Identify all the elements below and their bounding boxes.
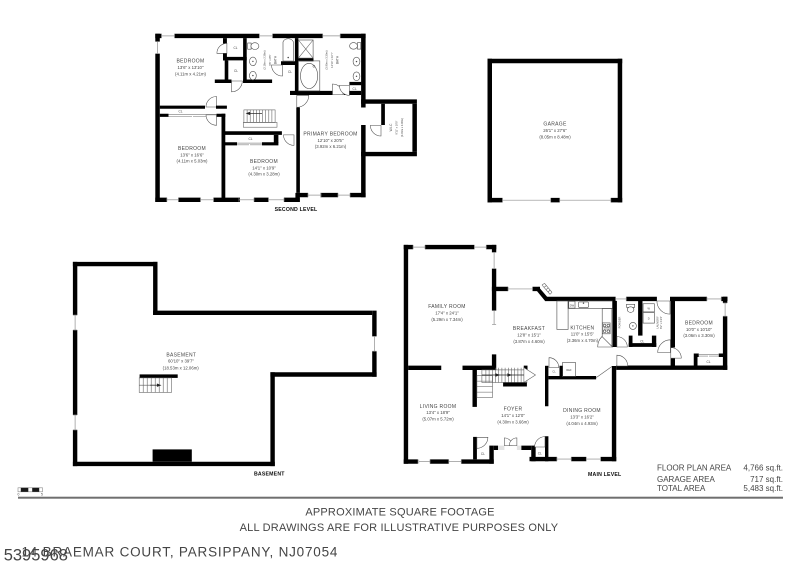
svg-text:CL: CL <box>481 452 485 456</box>
svg-text:W.I.C: W.I.C <box>389 123 393 131</box>
svg-text:4,766 sq.ft.: 4,766 sq.ft. <box>743 463 783 472</box>
svg-text:FOYER: FOYER <box>504 407 523 413</box>
svg-text:CL: CL <box>552 370 556 374</box>
svg-text:BASEMENT: BASEMENT <box>254 471 285 477</box>
svg-text:BEDROOM: BEDROOM <box>685 321 713 327</box>
svg-text:(2.16m x 2.36m): (2.16m x 2.36m) <box>262 50 266 69</box>
svg-text:12'10" x 10'7": 12'10" x 10'7" <box>330 52 334 68</box>
svg-text:REF: REF <box>566 368 572 372</box>
svg-text:(5.29m x 7.34m): (5.29m x 7.34m) <box>431 317 463 322</box>
svg-text:17'4" x 24'1": 17'4" x 24'1" <box>435 311 459 316</box>
svg-text:CL: CL <box>288 70 292 74</box>
svg-text:APPROXIMATE SQUARE FOOTAGE: APPROXIMATE SQUARE FOOTAGE <box>305 506 494 518</box>
svg-text:(4.04m x 4.93m): (4.04m x 4.93m) <box>566 421 598 426</box>
svg-text:11'0" x 15'5": 11'0" x 15'5" <box>571 332 595 337</box>
svg-text:(8.05m x 8.48m): (8.05m x 8.48m) <box>539 134 571 139</box>
svg-text:12'8" x 15'1": 12'8" x 15'1" <box>517 332 541 337</box>
svg-text:CL: CL <box>233 46 237 50</box>
svg-text:14'1" x 10'9": 14'1" x 10'9" <box>252 165 276 170</box>
svg-text:(3.36m x 4.70m): (3.36m x 4.70m) <box>567 338 599 343</box>
svg-text:FAMILY ROOM: FAMILY ROOM <box>428 304 466 310</box>
svg-text:CL: CL <box>234 69 238 73</box>
svg-text:26'1" x 27'6": 26'1" x 27'6" <box>543 128 567 133</box>
svg-text:CL: CL <box>538 451 542 455</box>
svg-text:0: 0 <box>18 492 20 496</box>
svg-text:13'3" x 16'2": 13'3" x 16'2" <box>570 415 594 420</box>
svg-text:13'6" x 13'10": 13'6" x 13'10" <box>178 65 204 70</box>
svg-text:CL: CL <box>706 360 710 364</box>
svg-text:TOTAL AREA: TOTAL AREA <box>657 484 706 493</box>
svg-text:717 sq.ft.: 717 sq.ft. <box>750 475 783 484</box>
svg-text:DW: DW <box>570 303 575 307</box>
svg-text:(3.90m x 3.30m): (3.90m x 3.30m) <box>324 50 328 69</box>
svg-text:PRIMARY BEDROOM: PRIMARY BEDROOM <box>303 132 357 138</box>
svg-text:CL: CL <box>640 339 644 343</box>
svg-text:(4.11m x 4.21m): (4.11m x 4.21m) <box>175 71 207 76</box>
svg-text:BATH: BATH <box>335 55 339 64</box>
svg-text:(18.53m x 12.06m): (18.53m x 12.06m) <box>163 366 200 371</box>
svg-text:CL: CL <box>353 87 357 91</box>
svg-text:ALL DRAWINGS ARE FOR ILLUSTRAT: ALL DRAWINGS ARE FOR ILLUSTRATIVE PURPOS… <box>240 522 559 534</box>
svg-text:LIVING ROOM: LIVING ROOM <box>420 404 457 410</box>
svg-text:60'10" x 39'7": 60'10" x 39'7" <box>168 358 194 363</box>
svg-text:13'4" x 18'9": 13'4" x 18'9" <box>426 410 450 415</box>
svg-text:BATH: BATH <box>273 55 277 64</box>
svg-text:POWDER: POWDER <box>618 317 622 329</box>
svg-text:DINING ROOM: DINING ROOM <box>563 408 601 414</box>
svg-text:5,483 sq.ft.: 5,483 sq.ft. <box>743 484 783 493</box>
svg-text:10'0" x 10'10": 10'0" x 10'10" <box>686 327 712 332</box>
svg-text:(3.92m x 6.21m): (3.92m x 6.21m) <box>315 144 347 149</box>
svg-text:(3.87m x 4.60m): (3.87m x 4.60m) <box>513 339 545 344</box>
svg-text:14'1" x 12'0": 14'1" x 12'0" <box>501 413 525 418</box>
svg-text:GARAGE: GARAGE <box>543 122 567 128</box>
svg-text:SECOND LEVEL: SECOND LEVEL <box>275 207 318 213</box>
svg-text:5: 5 <box>41 492 43 496</box>
svg-text:FLOOR PLAN AREA: FLOOR PLAN AREA <box>657 463 732 472</box>
svg-text:BEDROOM: BEDROOM <box>250 159 278 165</box>
svg-text:(5.07m x 5.72m): (5.07m x 5.72m) <box>422 417 454 422</box>
svg-text:BEDROOM: BEDROOM <box>178 146 206 152</box>
svg-text:(3.03m x 3.06m): (3.03m x 3.06m) <box>400 118 404 137</box>
svg-text:14 BRAEMAR COURT, PARSIPPANY,: 14 BRAEMAR COURT, PARSIPPANY, NJ07054 <box>22 545 339 560</box>
svg-text:13'6" x 16'6": 13'6" x 16'6" <box>180 152 204 157</box>
svg-text:GARAGE AREA: GARAGE AREA <box>657 475 715 484</box>
svg-text:6'2" x 13'4": 6'2" x 13'4" <box>659 316 663 329</box>
svg-text:CL: CL <box>178 109 182 113</box>
svg-text:LAUNDRY: LAUNDRY <box>655 316 659 329</box>
svg-text:9'11" x 10'0": 9'11" x 10'0" <box>395 120 399 134</box>
svg-text:MAIN LEVEL: MAIN LEVEL <box>588 472 622 478</box>
svg-text:(4.30m x 3.66m): (4.30m x 3.66m) <box>497 420 529 425</box>
svg-text:(3.06m x 3.30m): (3.06m x 3.30m) <box>683 333 715 338</box>
svg-text:9'6" x 8'5": 9'6" x 8'5" <box>268 54 272 65</box>
svg-text:(4.30m x 3.28m): (4.30m x 3.28m) <box>248 172 280 177</box>
svg-text:CL: CL <box>248 137 252 141</box>
svg-text:(4.11m x 5.03m): (4.11m x 5.03m) <box>177 159 209 164</box>
svg-text:5395968: 5395968 <box>4 546 68 564</box>
svg-text:12'10" x 20'5": 12'10" x 20'5" <box>318 138 344 143</box>
svg-text:BREAKFAST: BREAKFAST <box>513 326 545 332</box>
svg-text:BEDROOM: BEDROOM <box>177 58 205 64</box>
svg-text:D: D <box>648 317 650 321</box>
svg-text:KITCHEN: KITCHEN <box>570 326 594 332</box>
